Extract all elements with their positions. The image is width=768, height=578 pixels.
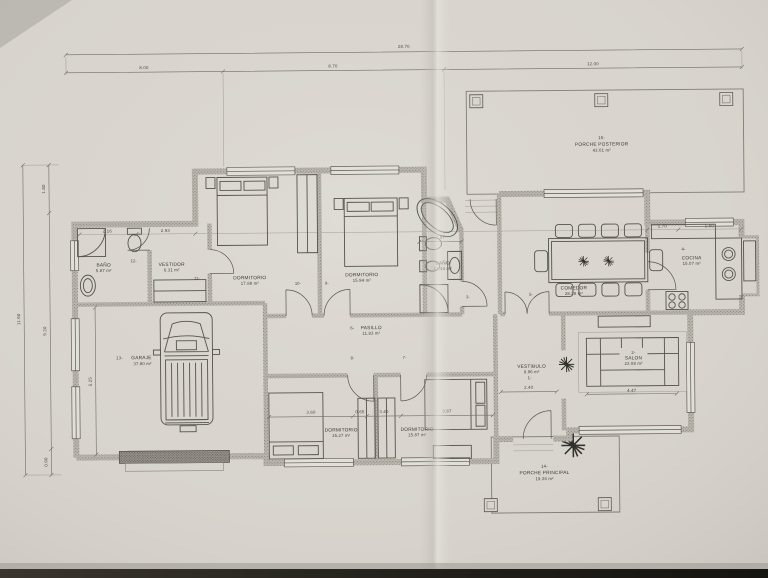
- dim-dorm3b: 3.40: [379, 409, 389, 414]
- floor-plan-drawing: 28.70 8.00 8.70 12.00 11.90 1.80 9.20 0.…: [0, 0, 768, 578]
- porch-column: [470, 95, 483, 108]
- dim-vestidor: 2.93: [161, 228, 171, 233]
- door-label-5: 5-: [529, 292, 533, 297]
- room-area-garaje: 37.80 m²: [133, 361, 152, 366]
- dim-left-mid: 9.20: [42, 326, 47, 336]
- wall-pasillo-south: [266, 374, 496, 376]
- dim-top-mid: 8.70: [328, 63, 338, 68]
- dim-bano1: 2.16: [103, 228, 113, 233]
- dim-salon: 4.47: [627, 388, 637, 393]
- porch-column: [595, 94, 608, 107]
- door-label-8: 8-: [351, 355, 355, 360]
- room-area-dorm1: 17.88 m²: [241, 281, 260, 286]
- dim-gap: 0.65: [355, 409, 365, 414]
- porch-column: [720, 93, 733, 106]
- door-label-9: 9-: [325, 281, 329, 286]
- room-area-dorm2: 15.94 m²: [353, 278, 372, 283]
- door-label-12: 12-: [131, 258, 138, 263]
- paper-fold-crease: [420, 0, 452, 578]
- paper-shading: [0, 0, 768, 578]
- wall-comedor-west: [499, 194, 500, 314]
- dim-left-bottom: 0.90: [43, 457, 48, 467]
- room-area-salon: 23.08 m²: [624, 361, 643, 366]
- porch-column: [484, 499, 497, 512]
- wall-dorm1-dorm2: [319, 171, 320, 316]
- dim-garage: 5.25: [88, 377, 93, 387]
- wall-dorm3-dorm4: [376, 375, 377, 462]
- door-label-7: 7-: [403, 355, 407, 360]
- room-num-cocina: 4-: [681, 246, 686, 251]
- door-label-3: 3-: [466, 294, 470, 299]
- dim-top-right: 12.00: [587, 61, 599, 66]
- wall-garage-right: [265, 303, 266, 463]
- room-num-porche-principal: 14-: [541, 464, 548, 469]
- dim-cocina1: 1.70: [658, 224, 668, 229]
- room-num-garaje: 13-: [116, 355, 123, 360]
- porch-column: [598, 498, 611, 511]
- plant-icon: [603, 256, 614, 267]
- door-label-11: 11-: [194, 276, 200, 281]
- dim-top-total: 28.70: [398, 44, 410, 49]
- plant-icon: [578, 256, 589, 267]
- room-num-pasillo: 6-: [350, 325, 355, 330]
- room-num-salon: 2-: [631, 350, 636, 355]
- room-area-dorm3: 15.27 m²: [332, 433, 351, 438]
- room-area-pasillo: 11.83 m²: [362, 331, 380, 336]
- closet-line: [386, 398, 387, 458]
- floor-plan-photo: 28.70 8.00 8.70 12.00 11.90 1.80 9.20 0.…: [0, 0, 768, 578]
- room-area-vestidor: 6.31 m²: [164, 267, 180, 272]
- room-area-porche-principal: 19.36 m²: [535, 476, 554, 481]
- plant-icon: [559, 357, 575, 373]
- room-area-comedor: 28.28 m²: [565, 291, 584, 296]
- room-area-bano1: 5.87 m²: [96, 268, 112, 273]
- room-num-vestibulo: 1-: [528, 375, 533, 380]
- dim-left-total: 11.90: [16, 313, 21, 325]
- wall-garage-top: [75, 303, 265, 305]
- door-label-10: 10-: [295, 281, 302, 286]
- room-area-cocina: 15.07 m²: [683, 261, 702, 266]
- room-num-porche-posterior: 15-: [598, 135, 605, 140]
- dim-vestibulo: 2.40: [524, 385, 534, 390]
- table-edge: [0, 569, 768, 578]
- dim-top-left: 8.00: [139, 65, 149, 70]
- room-area-porche-posterior: 43.01 m²: [593, 148, 612, 153]
- wall-vestibulo-west: [495, 314, 496, 439]
- room-area-vestibulo: 9.96 m²: [524, 369, 540, 374]
- closet-line: [366, 398, 367, 458]
- garage-door: [119, 450, 229, 463]
- dim-left-top: 1.80: [41, 184, 46, 194]
- dim-cocina2: 1.60: [705, 223, 715, 228]
- dim-dorm3: 3.60: [306, 410, 316, 415]
- paper-edge-shadow: [0, 563, 768, 570]
